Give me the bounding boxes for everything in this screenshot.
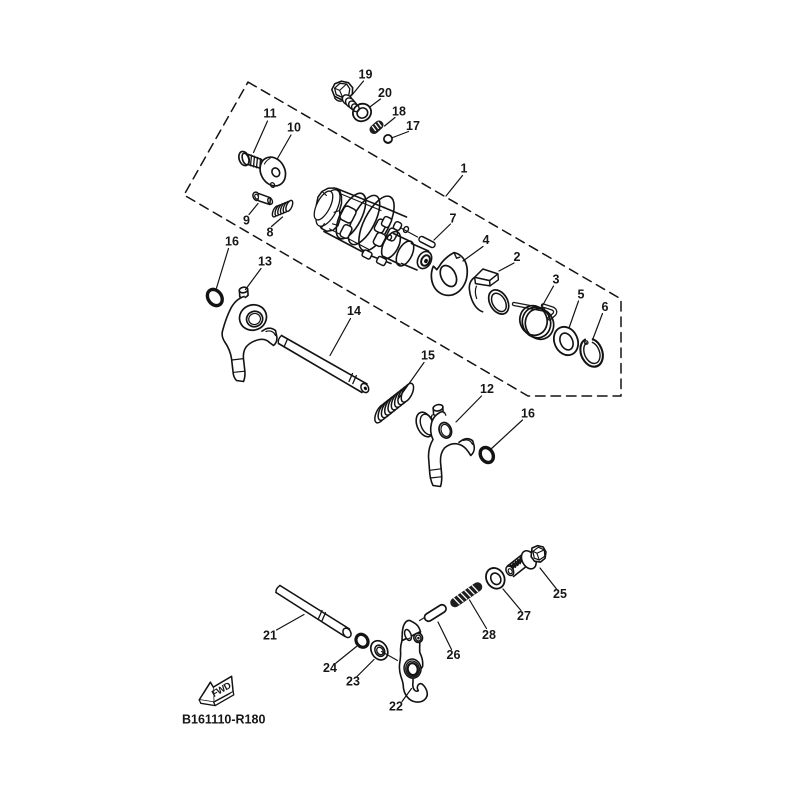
svg-text:3: 3 [553, 273, 560, 287]
svg-text:17: 17 [406, 119, 420, 133]
svg-text:18: 18 [392, 105, 406, 119]
svg-text:26: 26 [447, 648, 461, 662]
svg-text:2: 2 [514, 250, 521, 264]
svg-text:11: 11 [263, 107, 276, 121]
svg-text:5: 5 [578, 288, 585, 302]
svg-text:B161110-R180: B161110-R180 [182, 713, 265, 727]
svg-text:28: 28 [482, 628, 496, 642]
svg-text:7: 7 [450, 212, 457, 226]
svg-text:12: 12 [480, 382, 494, 396]
svg-text:16: 16 [225, 235, 239, 249]
svg-text:14: 14 [347, 304, 361, 318]
svg-text:13: 13 [258, 255, 272, 269]
svg-text:19: 19 [359, 68, 373, 82]
svg-text:8: 8 [267, 226, 274, 240]
svg-text:6: 6 [602, 300, 609, 314]
svg-text:23: 23 [346, 675, 360, 689]
svg-text:27: 27 [517, 609, 531, 623]
svg-text:10: 10 [287, 121, 301, 135]
svg-text:4: 4 [483, 233, 490, 247]
svg-text:21: 21 [263, 629, 277, 643]
svg-text:15: 15 [421, 349, 435, 363]
svg-text:24: 24 [323, 661, 337, 675]
svg-text:25: 25 [553, 587, 567, 601]
svg-text:9: 9 [243, 214, 250, 228]
svg-text:20: 20 [378, 86, 392, 100]
svg-text:1: 1 [461, 162, 468, 176]
svg-text:22: 22 [389, 700, 403, 714]
svg-text:16: 16 [521, 407, 535, 421]
